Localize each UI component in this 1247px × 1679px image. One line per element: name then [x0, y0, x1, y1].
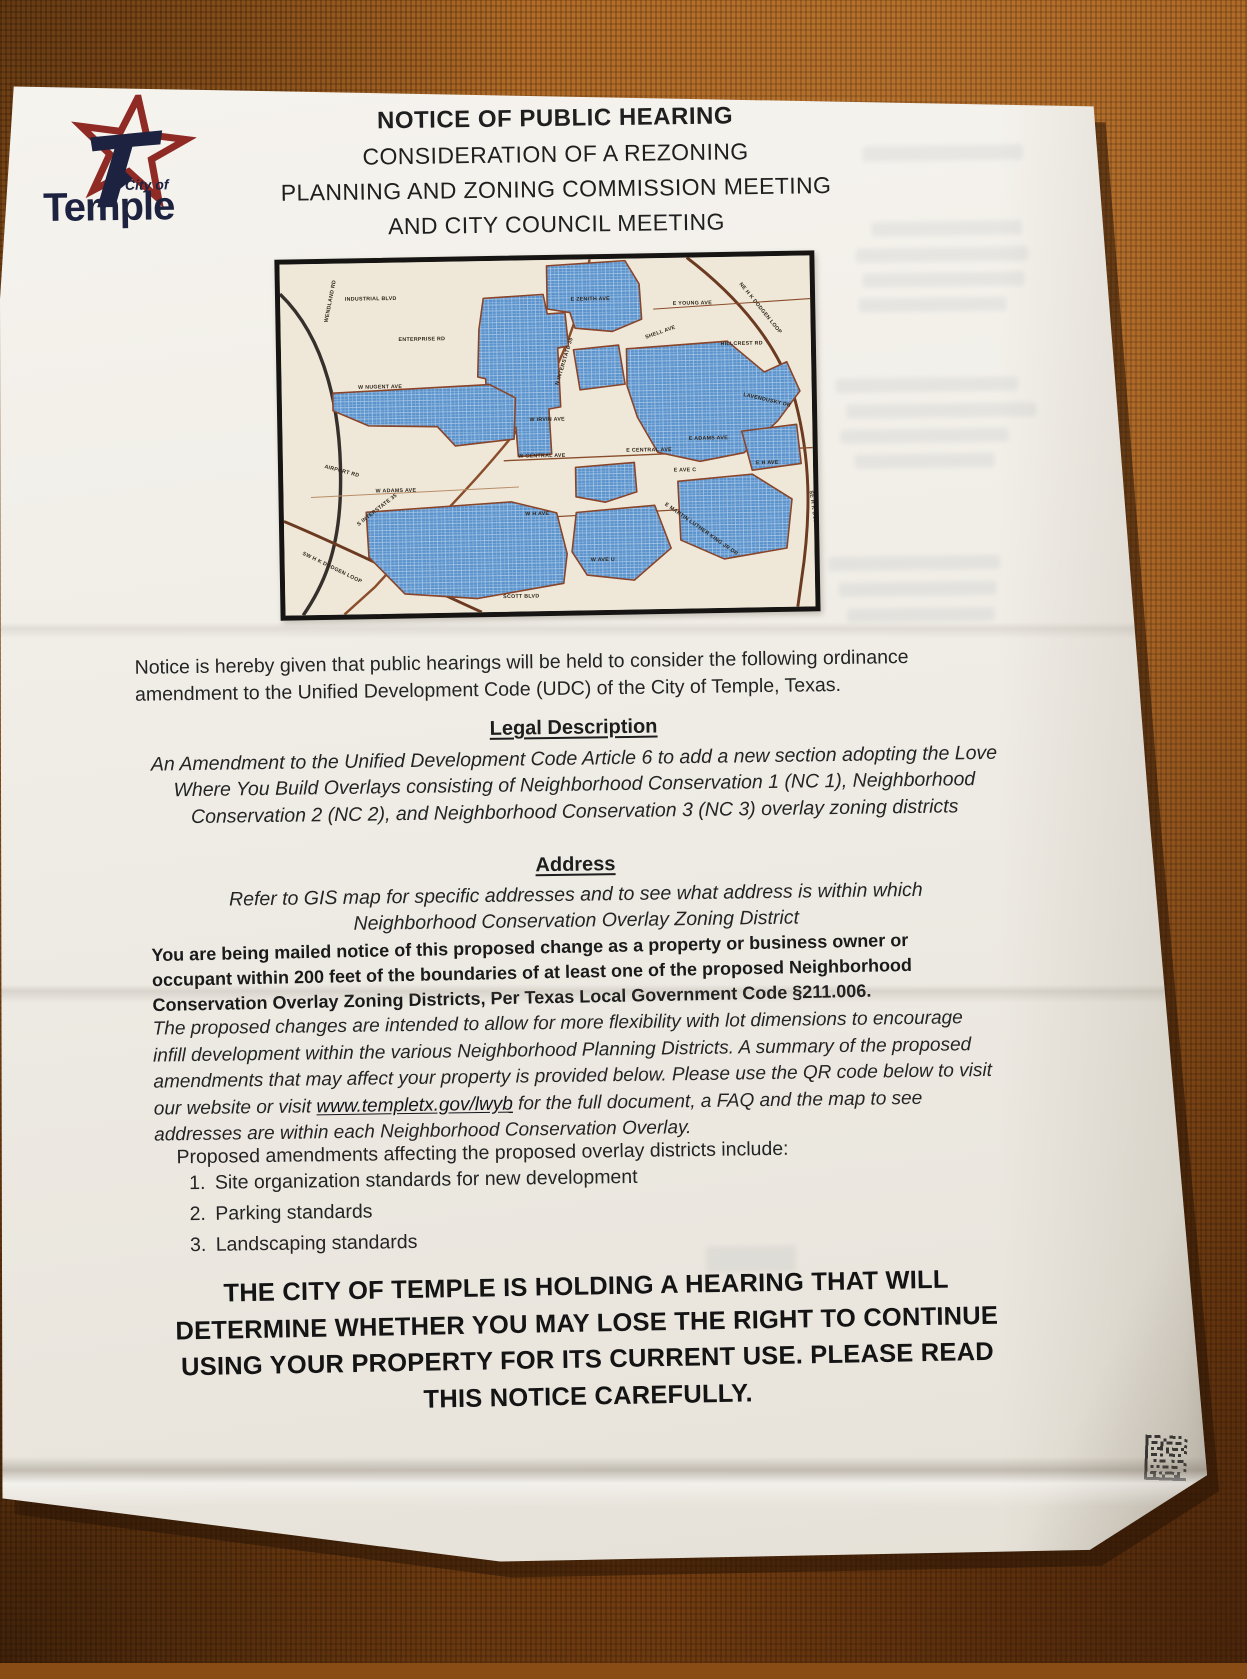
document-content: City of Temple NOTICE OF PUBLIC HEARING … [0, 0, 1247, 1672]
bleed-through-text [862, 271, 1024, 287]
header-line: CONSIDERATION OF A REZONING [190, 136, 920, 173]
street-label: E CENTRAL AVE [626, 447, 672, 454]
street-label: E H AVE [756, 460, 779, 466]
header-line: AND CITY COUNCIL MEETING [191, 206, 921, 243]
street-label: HILLCREST RD [721, 340, 763, 347]
street-label: W H AVE [525, 511, 549, 517]
bleed-through-text [846, 402, 1036, 419]
street-label: E AVE C [674, 467, 697, 473]
street-label: W AVE U [591, 557, 615, 563]
street-label: W ADAMS AVE [376, 488, 417, 495]
zoning-map-image: INDUSTRIAL BLVD WENDLAND RD ENTERPRISE R… [279, 255, 815, 615]
notice-title-block: NOTICE OF PUBLIC HEARING CONSIDERATION O… [190, 100, 922, 251]
street-label: ENTERPRISE RD [399, 336, 446, 343]
notice-document-paper: City of Temple NOTICE OF PUBLIC HEARING … [0, 0, 1247, 1663]
legal-description-heading: Legal Description [158, 711, 988, 746]
intro-paragraph: Notice is hereby given that public heari… [134, 644, 940, 709]
street-label: W CENTRAL AVE [518, 453, 565, 460]
street-label: SCOTT BLVD [503, 593, 539, 600]
street-label: W NUGENT AVE [358, 384, 402, 391]
street-label: W IRVIN AVE [529, 417, 565, 424]
bleed-through-text [847, 607, 995, 623]
legal-description-text: An Amendment to the Unified Development … [139, 740, 1010, 831]
bleed-through-text [856, 246, 1028, 262]
street-label: E ZENITH AVE [571, 296, 611, 303]
proposed-changes-text: The proposed changes are intended to all… [153, 1005, 1003, 1150]
hearing-warning: THE CITY OF TEMPLE IS HOLDING A HEARING … [156, 1260, 1019, 1423]
street-label: E ADAMS AVE [689, 435, 728, 442]
qr-code [1144, 1434, 1188, 1483]
bleed-through-text [839, 581, 997, 597]
header-line: PLANNING AND ZONING COMMISSION MEETING [191, 171, 921, 208]
header-line: NOTICE OF PUBLIC HEARING [190, 100, 920, 138]
bleed-through-text [828, 555, 1000, 571]
amendment-list-item: Parking standards [211, 1194, 875, 1226]
amendments-list: Site organization standards for new deve… [175, 1163, 876, 1266]
mailed-notice-text: You are being mailed notice of this prop… [151, 926, 984, 1018]
website-link: www.templetx.gov/lwyb [316, 1093, 513, 1117]
amendment-list-item: Landscaping standards [212, 1225, 876, 1257]
zoning-map: INDUSTRIAL BLVD WENDLAND RD ENTERPRISE R… [274, 250, 820, 620]
logo-name: Temple [43, 184, 175, 231]
street-label: INDUSTRIAL BLVD [345, 296, 397, 303]
bleed-through-text [840, 428, 1008, 444]
bleed-through-text [859, 297, 1007, 313]
street-label: E YOUNG AVE [673, 300, 713, 307]
bleed-through-text [836, 376, 1018, 393]
bleed-through-text [855, 453, 995, 469]
